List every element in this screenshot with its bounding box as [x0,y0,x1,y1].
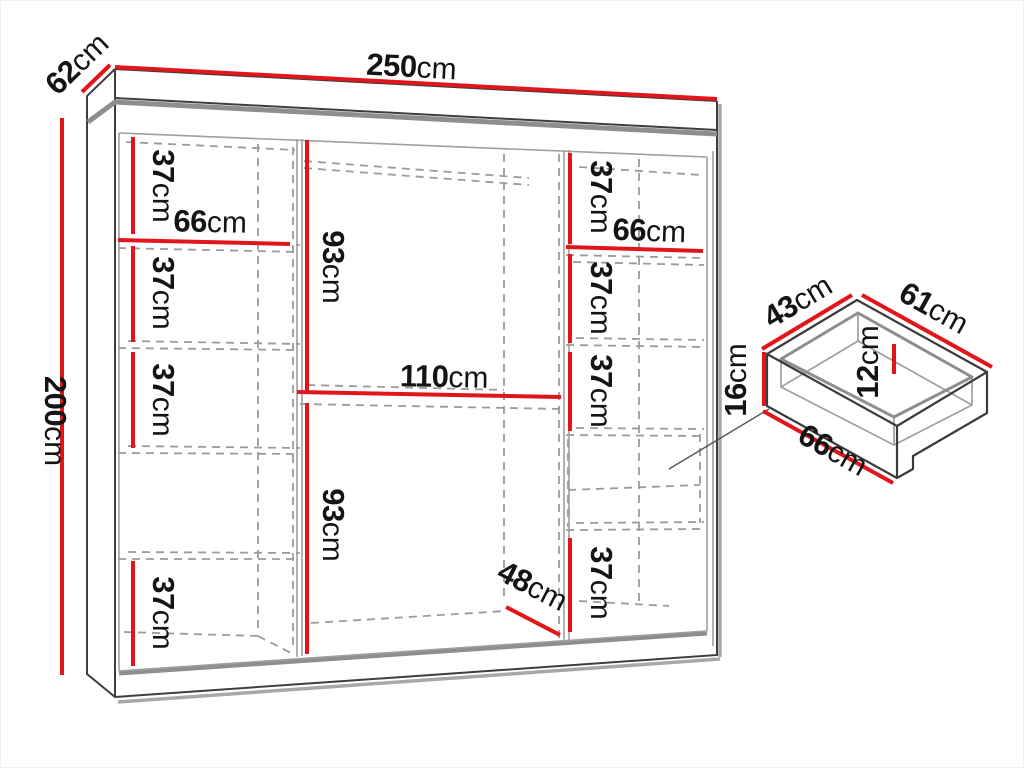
diagram-canvas: 250cm 62cm 200cm 37cm 66cm 37cm 37cm [1,1,1024,768]
label-right-width: 66cm [612,212,687,250]
dim-wardrobe-depth: 62cm [38,25,115,101]
wardrobe-shadow-edges [118,104,720,702]
label-drawer-inner-height: 12cm [850,325,885,398]
label-right-gap-2: 37cm [584,261,619,334]
label-drawer-front-height: 16cm [718,343,753,416]
dim-drawer-inner-height: 12cm [850,325,894,398]
wardrobe-top-front-edge [88,102,717,134]
label-wardrobe-height: 200cm [38,376,73,466]
label-drawer-width: 61cm [893,275,974,341]
dim-drawer-depth: 43cm [757,267,852,349]
dim-left-gap-4: 37cm [133,561,181,666]
label-left-width: 66cm [173,203,247,239]
dim-right-gap-3: 37cm [570,352,619,431]
label-middle-lower-height: 93cm [316,488,351,561]
label-drawer-depth: 43cm [757,267,838,335]
dim-left-width: 66cm [118,203,290,244]
dim-right-gap-2: 37cm [570,254,619,343]
label-middle-upper-height: 93cm [316,230,351,303]
label-left-gap-3: 37cm [146,363,181,436]
furniture-dimension-diagram: 250cm 62cm 200cm 37cm 66cm 37cm 37cm [0,0,1024,768]
dim-wardrobe-width: 250cm [115,47,717,99]
drawer-slot-dashes [568,434,700,527]
dim-middle-upper-height: 93cm [307,140,351,392]
label-wardrobe-width: 250cm [366,47,458,87]
dim-right-gap-4: 37cm [570,538,619,632]
label-wardrobe-depth: 62cm [38,25,115,101]
drawer-diagram: 43cm 61cm 16cm 12cm 66cm [718,267,992,483]
dim-drawer-front-height: 16cm [718,343,764,416]
dim-left-gap-3: 37cm [133,352,181,448]
dim-middle-lower-height: 93cm [307,403,351,654]
label-right-gap-3: 37cm [584,354,619,427]
label-right-gap-4: 37cm [584,546,619,619]
dim-wardrobe-height: 200cm [38,118,73,675]
label-left-gap-2: 37cm [146,256,181,329]
label-middle-shelf-width: 110cm [400,358,489,395]
wardrobe-dimensions: 250cm 62cm 200cm 37cm 66cm 37cm 37cm [38,25,717,675]
label-middle-floor-depth: 48cm [492,553,573,618]
label-left-gap-4: 37cm [146,576,181,649]
dim-left-gap-2: 37cm [133,246,181,342]
dim-middle-shelf-width: 110cm [297,358,561,397]
label-drawer-front-width: 66cm [792,417,873,483]
dim-drawer-front-width: 66cm [763,411,893,483]
